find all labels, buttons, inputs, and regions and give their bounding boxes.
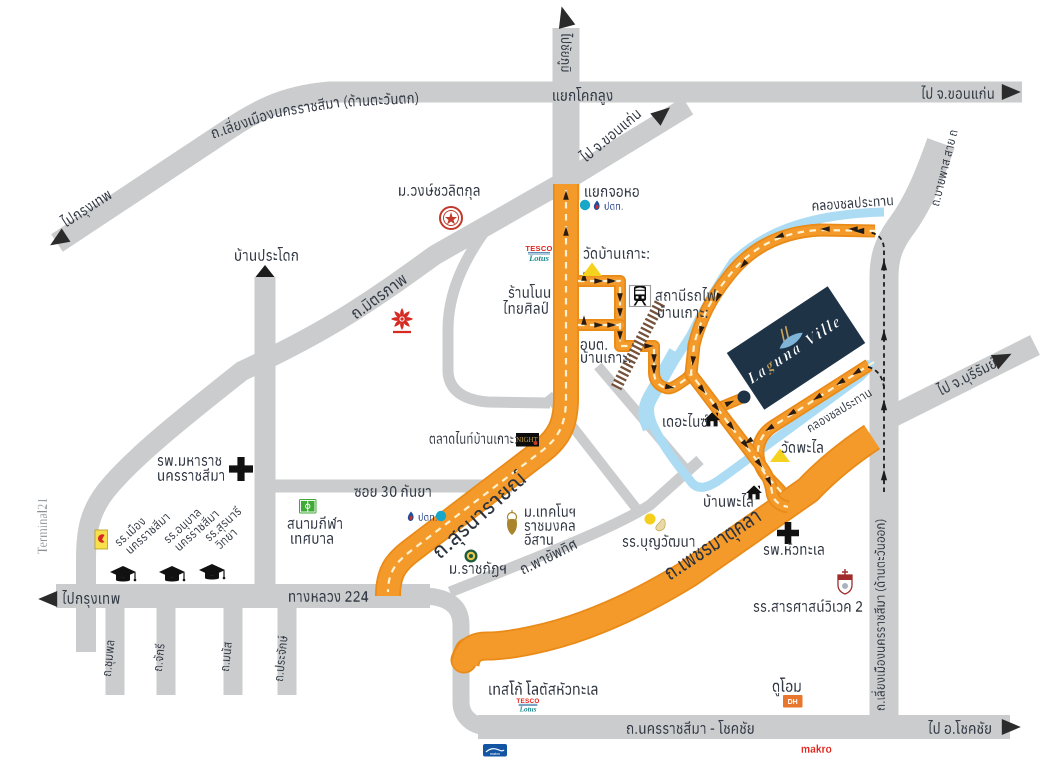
svg-text:DH: DH [788, 699, 798, 706]
svg-text:TESCO: TESCO [525, 244, 552, 253]
svg-text:Lotus: Lotus [519, 706, 537, 714]
svg-text:Lotus: Lotus [528, 253, 550, 263]
svg-text:makro: makro [490, 752, 500, 756]
